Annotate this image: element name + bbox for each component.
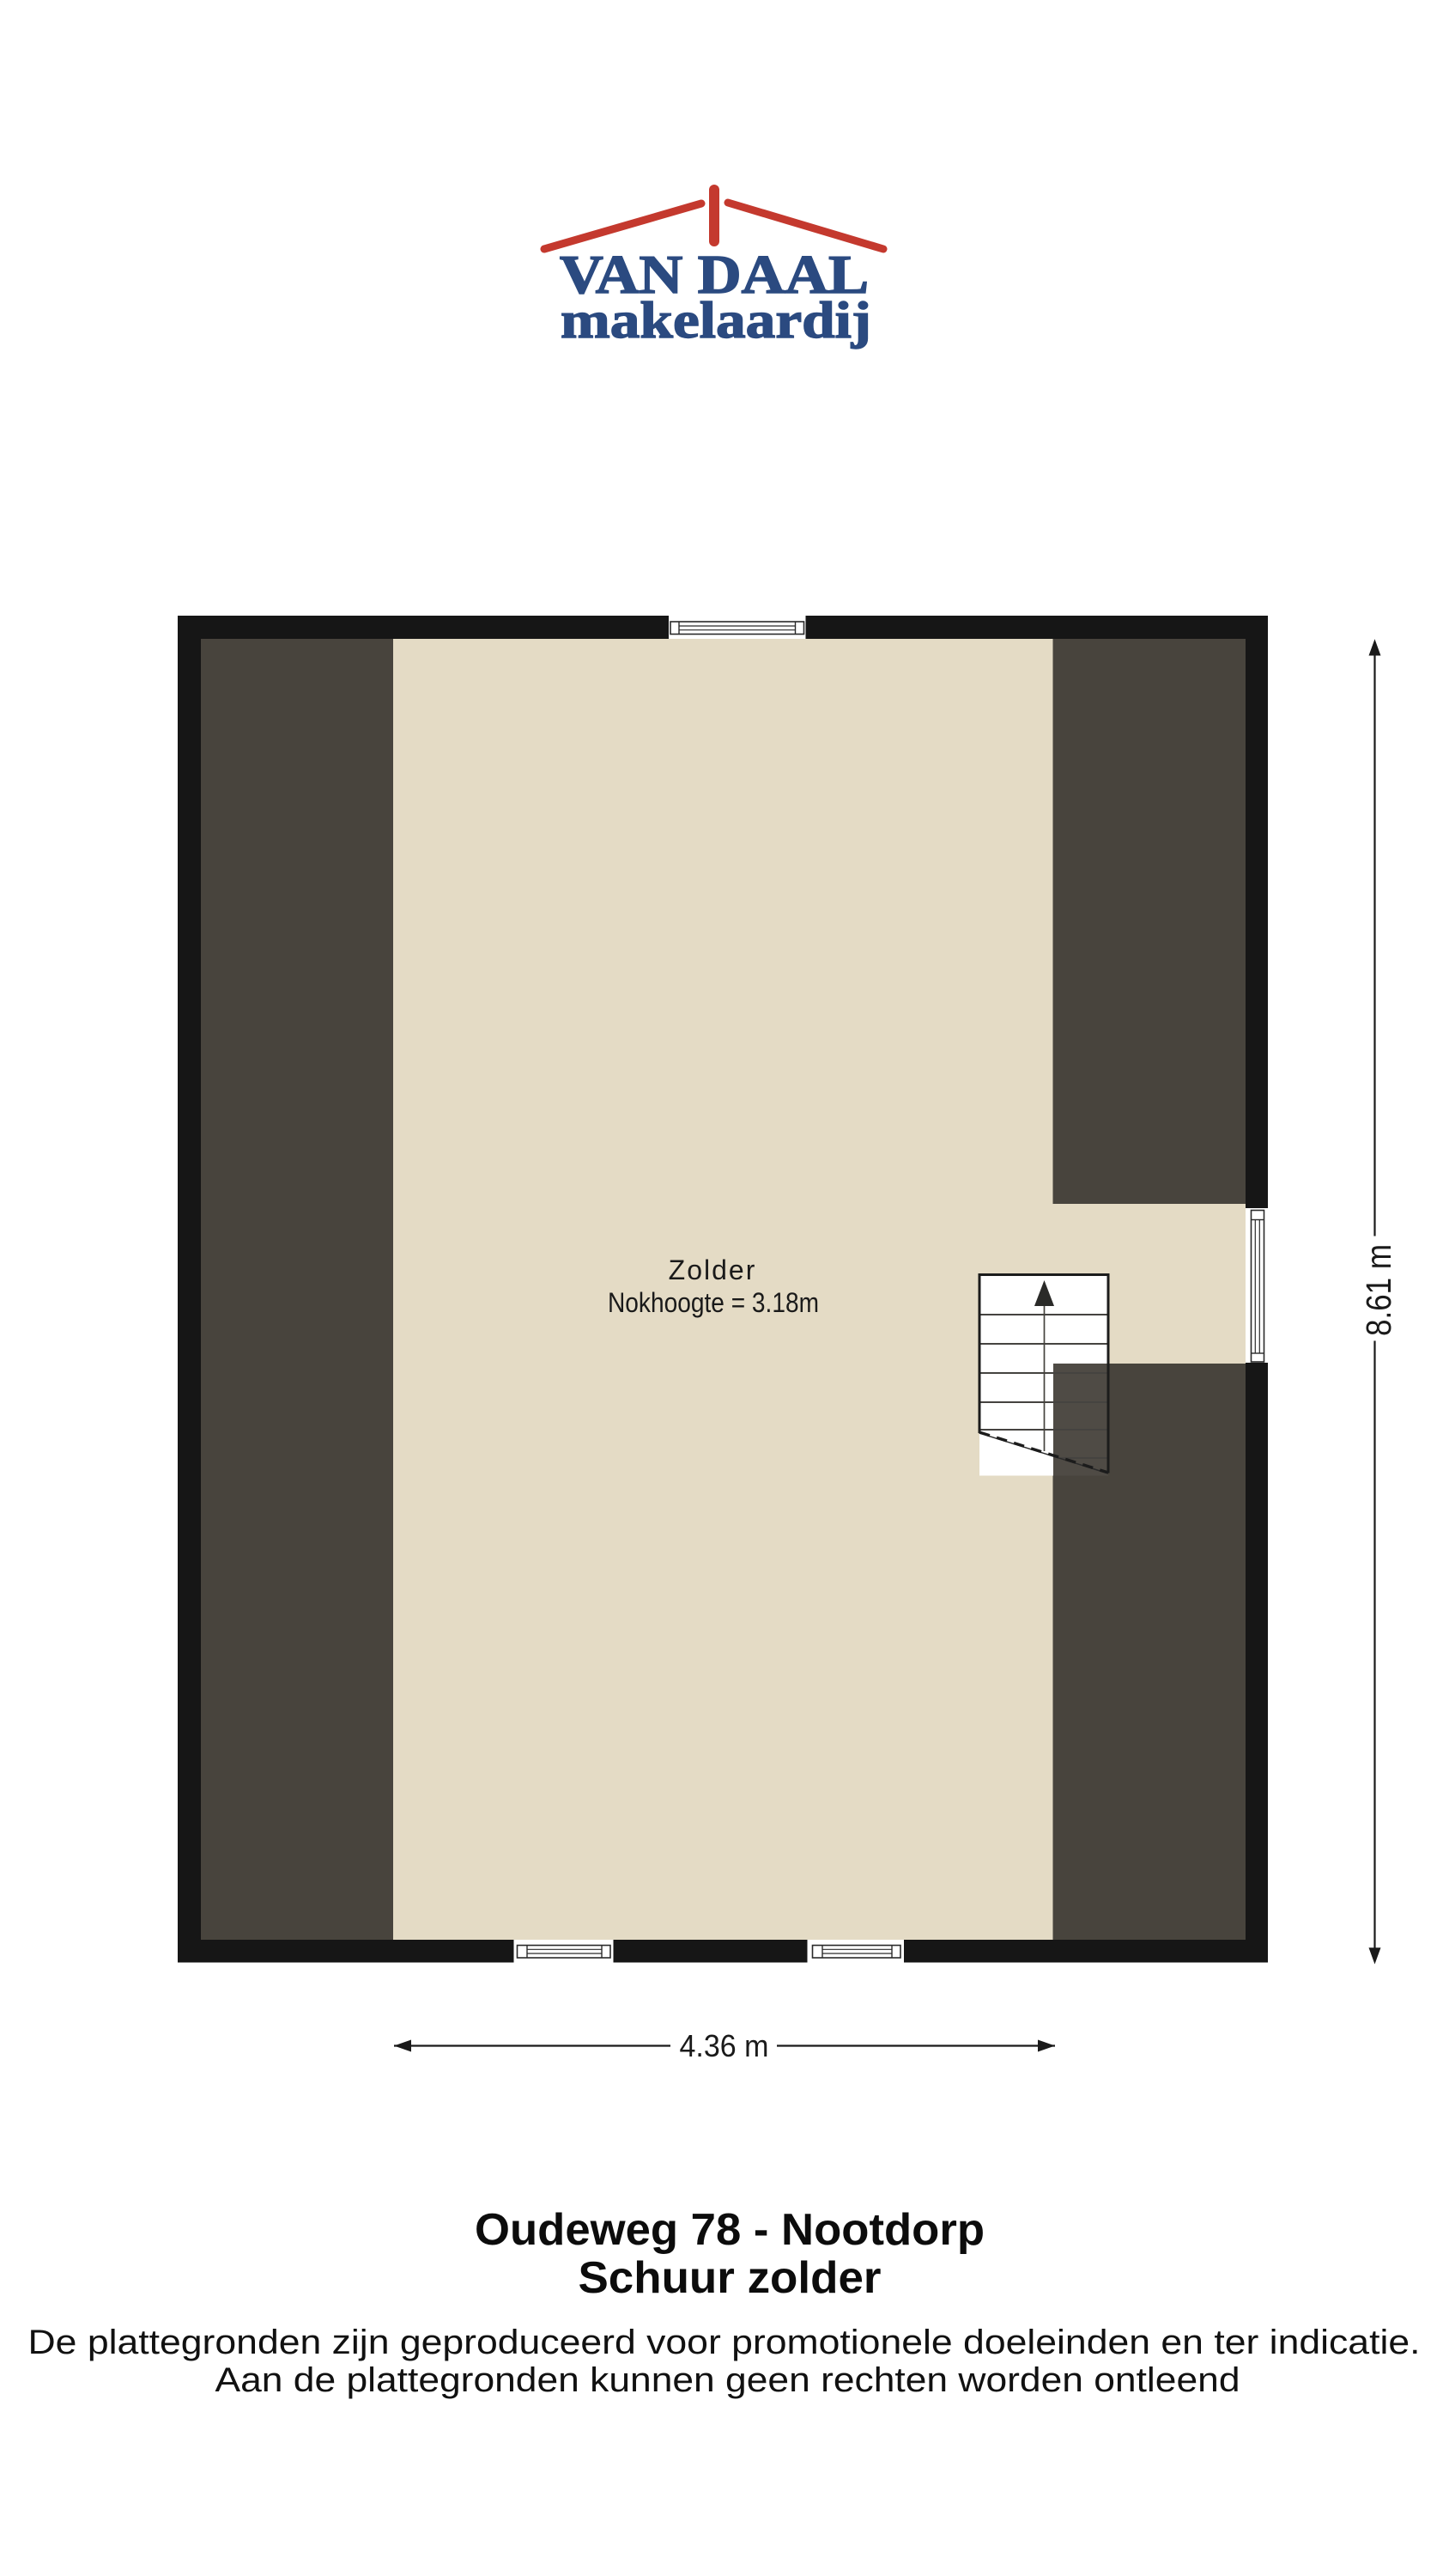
- svg-text:Zolder: Zolder: [669, 1255, 757, 1285]
- svg-text:4.36 m: 4.36 m: [680, 2028, 769, 2063]
- svg-text:Oudeweg 78 - Nootdorp: Oudeweg 78 - Nootdorp: [475, 2205, 985, 2255]
- svg-text:De plattegronden zijn geproduc: De plattegronden zijn geproduceerd voor …: [28, 2324, 1421, 2361]
- svg-text:8.61 m: 8.61 m: [1359, 1244, 1398, 1336]
- svg-text:makelaardij: makelaardij: [561, 292, 871, 349]
- svg-text:Nokhoogte = 3.18m: Nokhoogte = 3.18m: [608, 1287, 819, 1318]
- svg-text:Aan de plattegronden kunnen ge: Aan de plattegronden kunnen geen rechten…: [215, 2361, 1240, 2399]
- svg-text:Schuur zolder: Schuur zolder: [579, 2253, 882, 2303]
